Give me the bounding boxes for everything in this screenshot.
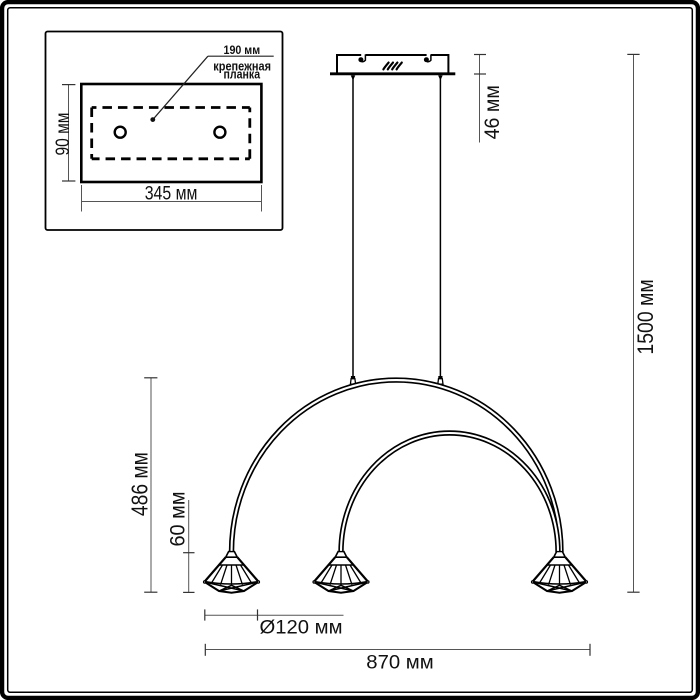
svg-text:870 мм: 870 мм: [366, 651, 433, 673]
svg-text:345 мм: 345 мм: [145, 182, 198, 204]
svg-text:190 мм: 190 мм: [224, 45, 261, 57]
svg-text:90 мм: 90 мм: [52, 113, 74, 156]
svg-text:Ø120 мм: Ø120 мм: [260, 617, 343, 639]
svg-text:60 мм: 60 мм: [166, 492, 190, 547]
svg-text:486 мм: 486 мм: [126, 452, 152, 516]
svg-text:46 мм: 46 мм: [480, 85, 504, 139]
svg-text:1500 мм: 1500 мм: [633, 279, 658, 354]
svg-text:планка: планка: [224, 67, 261, 82]
